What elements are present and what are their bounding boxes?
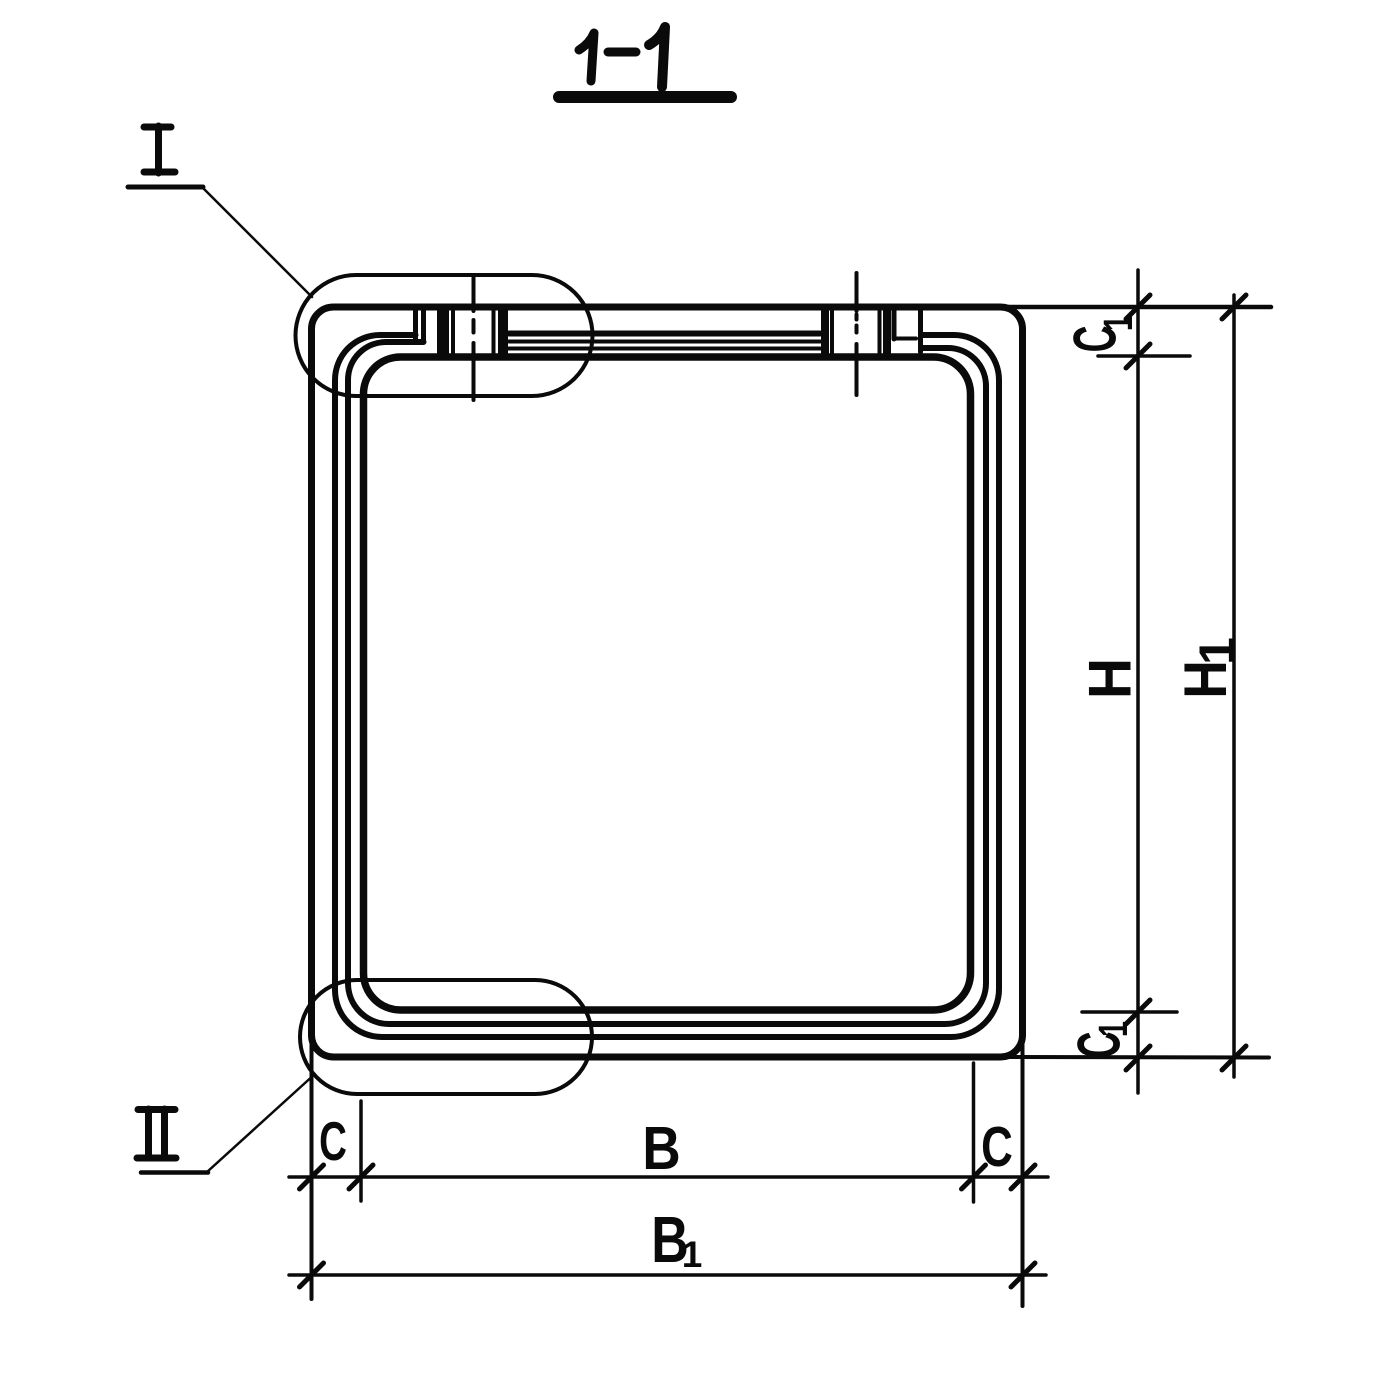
svg-text:H: H (1077, 658, 1144, 699)
svg-text:1: 1 (1096, 315, 1141, 331)
svg-text:C: C (981, 1114, 1013, 1178)
svg-text:1: 1 (682, 1234, 703, 1275)
svg-text:1: 1 (1091, 1021, 1136, 1037)
svg-text:C: C (319, 1111, 347, 1172)
svg-text:1: 1 (1189, 637, 1245, 665)
svg-text:B: B (642, 1115, 680, 1183)
svg-text:H: H (1173, 660, 1240, 699)
